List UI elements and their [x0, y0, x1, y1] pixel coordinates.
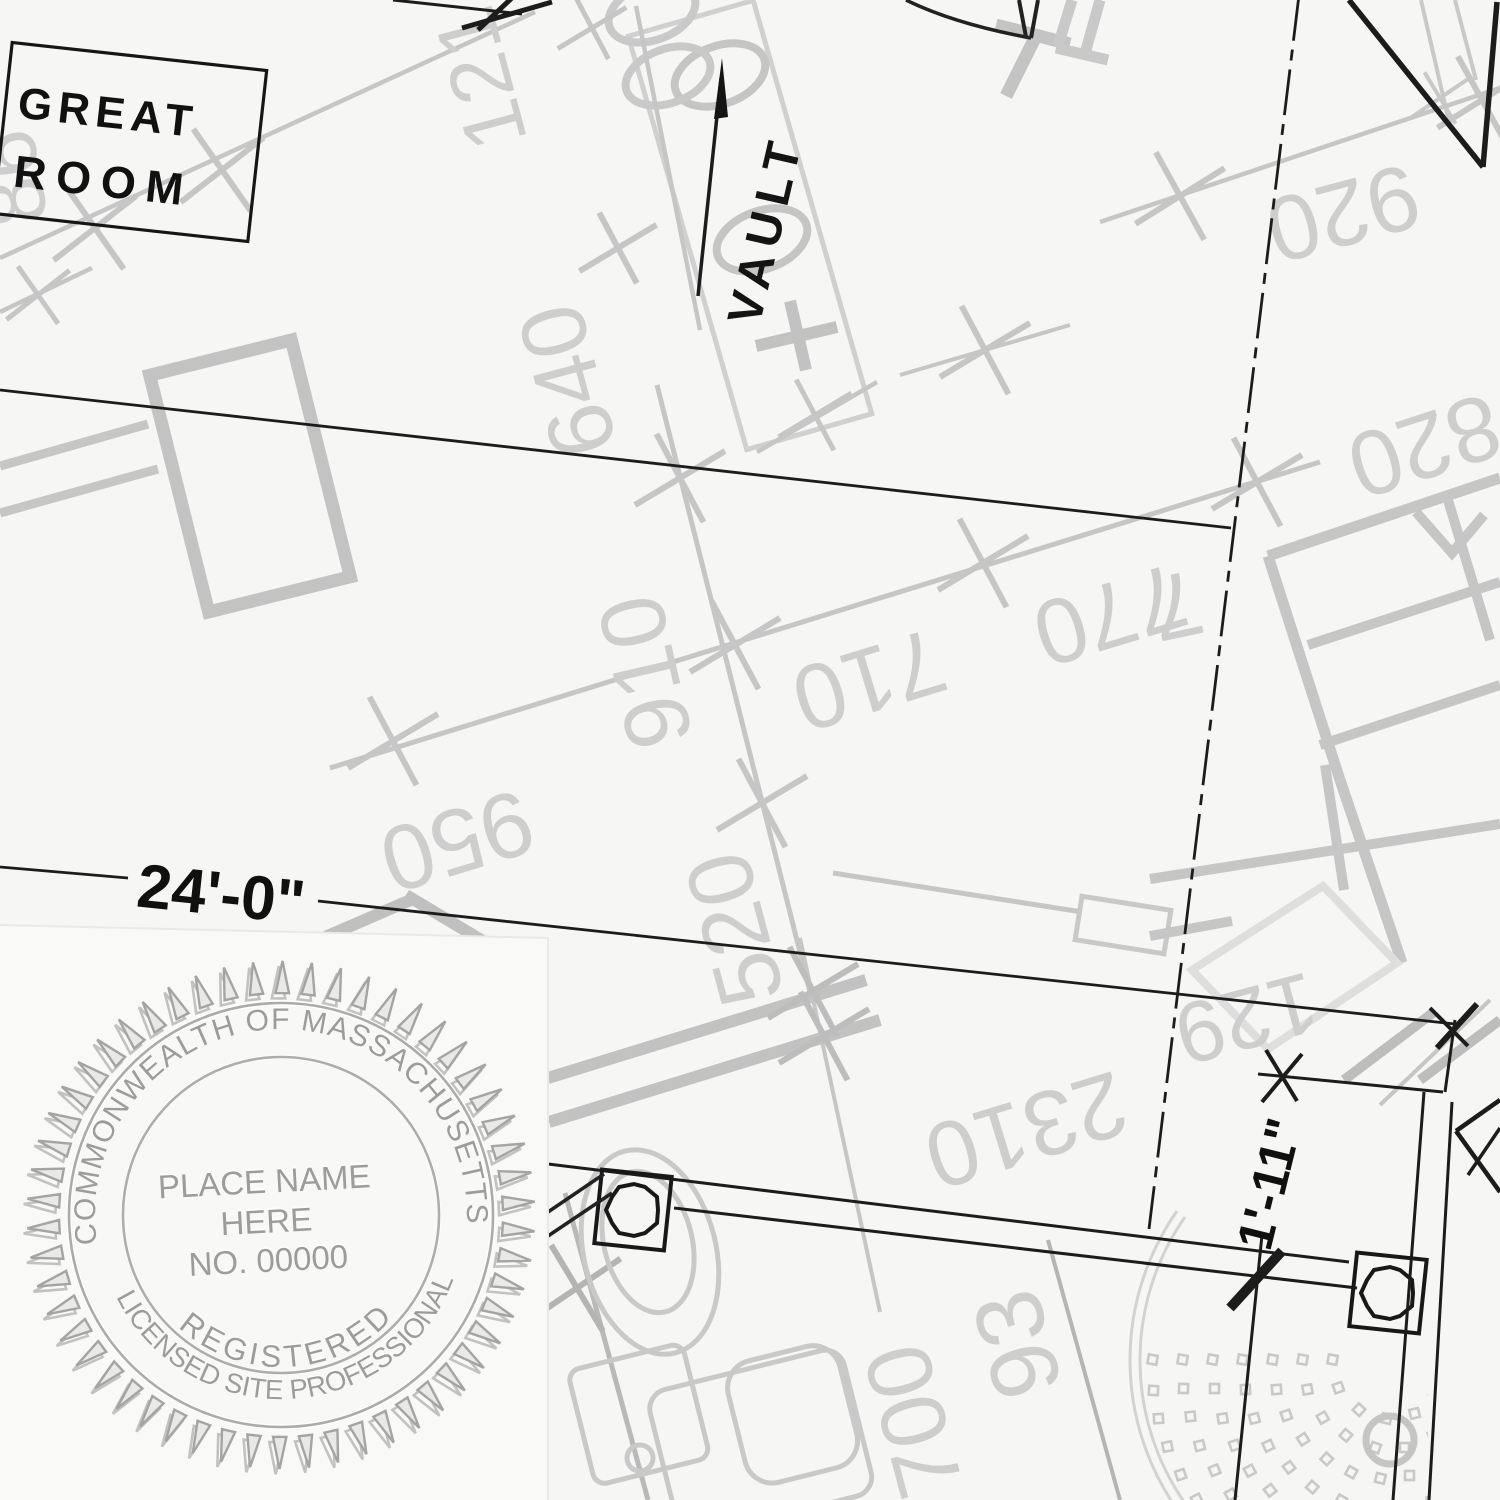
svg-text:HERE: HERE — [220, 1200, 313, 1242]
